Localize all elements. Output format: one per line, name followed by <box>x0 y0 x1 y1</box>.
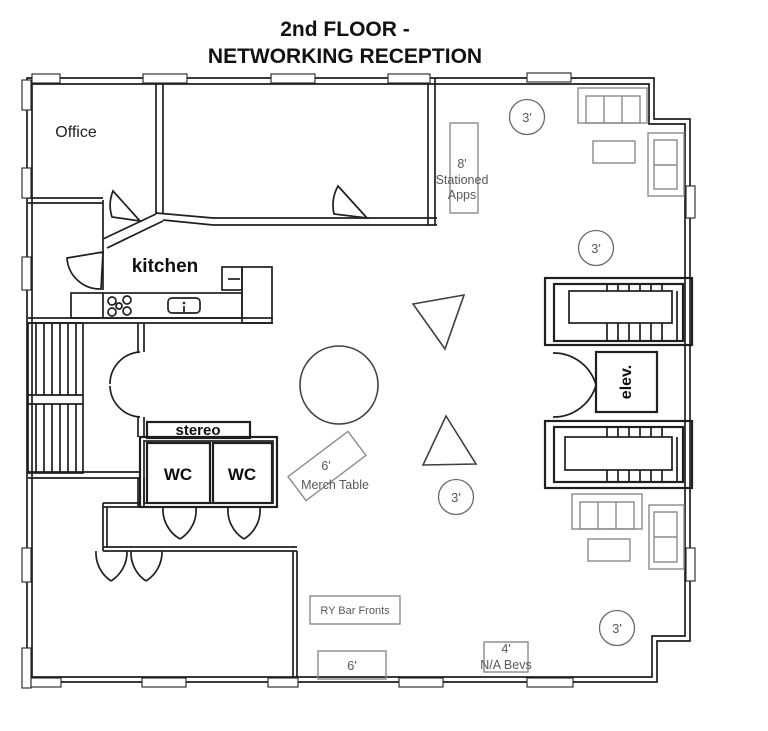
merch-table-label: Merch Table <box>301 478 369 492</box>
hall-door-right <box>131 551 162 581</box>
wc-right-door <box>228 507 260 539</box>
stationed-apps-line1: Stationed <box>436 173 489 187</box>
triangle-lower <box>423 416 476 465</box>
radius-label-top: 3' <box>522 110 532 125</box>
room-labels: Office kitchen stereo WC WC elev. <box>55 124 635 484</box>
refrigerator <box>242 267 272 323</box>
radius-label-bottom: 3' <box>612 621 622 636</box>
right-staircase-bottom <box>545 421 692 488</box>
elevator <box>553 352 657 417</box>
office-label: Office <box>55 124 97 141</box>
na-bevs-label: N/A Bevs <box>480 658 531 672</box>
bar-front-size-label: 6' <box>347 658 357 673</box>
wc-left-label: WC <box>164 465 192 484</box>
floor-shapes <box>300 295 476 465</box>
floor-plan-canvas: 2nd FLOOR - NETWORKING RECEPTION <box>0 0 768 731</box>
outer-walls <box>27 78 690 682</box>
sink-icon <box>168 298 200 313</box>
big-room-door <box>333 186 367 218</box>
radius-label-center: 3' <box>451 490 461 505</box>
kitchen-door <box>67 252 103 289</box>
annotation-labels: 8' Stationed Apps 3' 3' 3' 3' 6' Merch T… <box>301 110 622 673</box>
stationed-apps-line2: Apps <box>448 188 477 202</box>
interior-walls <box>28 78 437 682</box>
radius-label-mid: 3' <box>591 241 601 256</box>
left-staircase <box>28 323 83 473</box>
triangle-upper <box>413 295 464 349</box>
na-bevs-size: 4' <box>501 642 510 656</box>
stereo-label: stereo <box>175 422 220 439</box>
kitchen-label: kitchen <box>132 256 199 277</box>
coffee-table-bottom <box>588 539 630 561</box>
office-door <box>110 191 140 221</box>
round-table <box>300 346 378 424</box>
title-line-2: NETWORKING RECEPTION <box>208 45 482 68</box>
sofa-bottom <box>572 494 642 529</box>
stove-icon <box>108 296 131 316</box>
lounge-set-top <box>578 88 684 196</box>
merch-table-size: 6' <box>321 459 330 473</box>
elevator-label: elev. <box>618 365 635 399</box>
lounge-set-bottom <box>572 494 684 569</box>
coffee-table-top <box>593 141 635 163</box>
plan-title: 2nd FLOOR - NETWORKING RECEPTION <box>208 18 482 68</box>
hall-door-left <box>96 551 127 581</box>
elevator-doors <box>553 353 596 417</box>
sofa-top <box>578 88 647 123</box>
floor-plan-svg: 2nd FLOOR - NETWORKING RECEPTION <box>0 0 768 731</box>
stationed-apps-size: 8' <box>457 157 466 171</box>
right-staircase-top <box>545 278 692 345</box>
wc-right-label: WC <box>228 465 256 484</box>
wc-left-door <box>163 507 196 539</box>
ry-bar-fronts-label: RY Bar Fronts <box>320 605 390 617</box>
title-line-1: 2nd FLOOR - <box>280 18 410 41</box>
